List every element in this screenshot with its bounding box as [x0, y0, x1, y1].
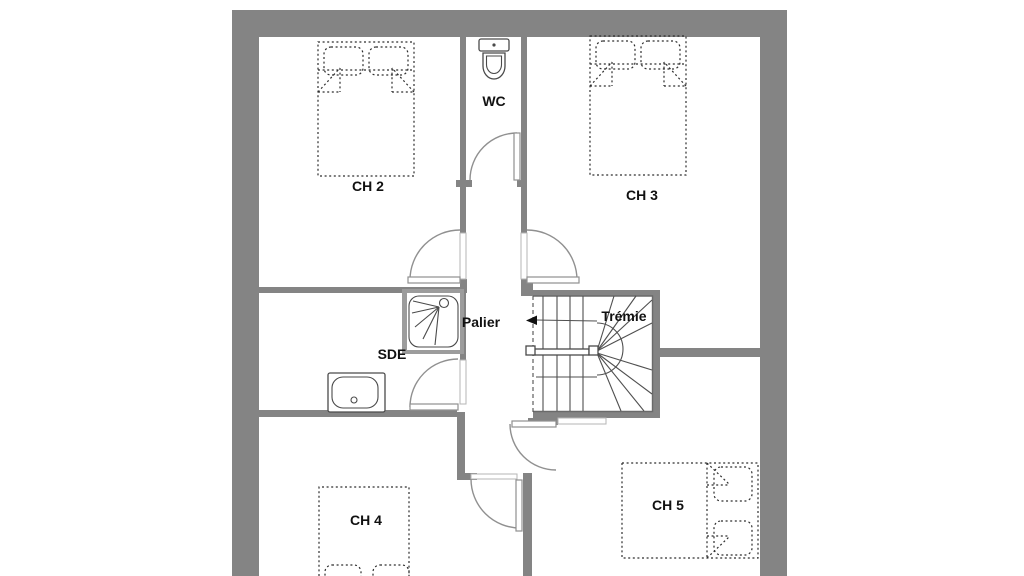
toilet-icon — [479, 39, 509, 79]
stair-post — [589, 346, 598, 355]
wall-bottom-center — [523, 473, 532, 576]
stair-direction-arrow-icon — [526, 316, 537, 326]
threshold-ch5 — [558, 418, 606, 424]
door-sde — [410, 359, 458, 410]
door-leaf — [512, 421, 556, 427]
room-label-ch5: CH 5 — [652, 497, 684, 513]
wall-palier-jog — [457, 412, 465, 474]
threshold-ch3 — [521, 233, 527, 279]
door-ch5 — [510, 421, 556, 470]
wall-left — [232, 10, 259, 576]
door-ch2 — [408, 230, 460, 283]
pillow — [714, 521, 752, 555]
pillow — [373, 565, 409, 576]
toilet-bolt — [492, 43, 495, 46]
wall-corridor-right — [521, 187, 527, 233]
bed-icon-ch2 — [318, 42, 414, 176]
door-leaf — [516, 480, 522, 531]
room-label-tremie: Trémie — [601, 308, 646, 324]
pillow — [324, 47, 363, 75]
stair-post — [526, 346, 535, 355]
door-arc — [527, 230, 577, 280]
threshold-ch4 — [471, 474, 517, 479]
bed-icon-ch4 — [319, 487, 409, 576]
wall-wc-south-right — [517, 180, 527, 187]
room-label-palier: Palier — [462, 314, 501, 330]
wall-wc-south-left — [456, 180, 472, 187]
door-arc — [471, 479, 520, 528]
door-ch4 — [471, 479, 522, 531]
bed-icon-ch3 — [590, 36, 686, 175]
room-label-ch4: CH 4 — [350, 512, 382, 528]
interior-walls — [258, 37, 761, 576]
threshold-ch2 — [460, 233, 466, 279]
door-leaf — [408, 277, 460, 283]
floor-plan-drawing: CH 2 WC CH 3 SDE Palier Trémie CH 4 CH 5 — [0, 0, 1024, 576]
shower-icon — [402, 289, 464, 354]
pillow — [714, 467, 752, 501]
wall-top — [232, 10, 787, 37]
wall-wc-left — [460, 37, 466, 184]
pillow — [369, 47, 408, 75]
floor-plan-canvas: CH 2 WC CH 3 SDE Palier Trémie CH 4 CH 5 — [0, 0, 1024, 576]
pillow — [596, 41, 635, 69]
bed-outline — [318, 42, 414, 176]
wall-corridor-left — [460, 187, 466, 233]
door-leaf — [514, 133, 520, 180]
pillow — [325, 565, 361, 576]
bed-icon-ch5 — [622, 463, 758, 558]
door-arc — [470, 133, 517, 180]
door-arc — [410, 230, 460, 280]
door-arc — [410, 359, 458, 407]
wall-right — [760, 10, 787, 576]
threshold-sde — [460, 360, 466, 404]
door-leaf — [410, 404, 458, 410]
bed-outline — [590, 36, 686, 175]
room-label-sde: SDE — [378, 346, 407, 362]
wall-wc-right — [521, 37, 527, 184]
room-label-ch3: CH 3 — [626, 187, 658, 203]
wall-stair-right — [653, 296, 660, 412]
pillow — [641, 41, 680, 69]
bed-outline — [319, 487, 409, 576]
room-label-ch2: CH 2 — [352, 178, 384, 194]
door-leaf — [527, 277, 579, 283]
wall-ch3-ch5-divider — [660, 348, 761, 357]
wall-stair-bottom — [533, 412, 660, 418]
door-wc — [470, 133, 520, 180]
wall-stair-top — [533, 290, 660, 296]
door-ch3 — [527, 230, 579, 283]
stair-rail — [534, 349, 589, 355]
room-label-wc: WC — [482, 93, 505, 109]
door-arc — [510, 424, 556, 470]
bed-outline — [622, 463, 758, 558]
bathtub-icon — [328, 373, 385, 412]
